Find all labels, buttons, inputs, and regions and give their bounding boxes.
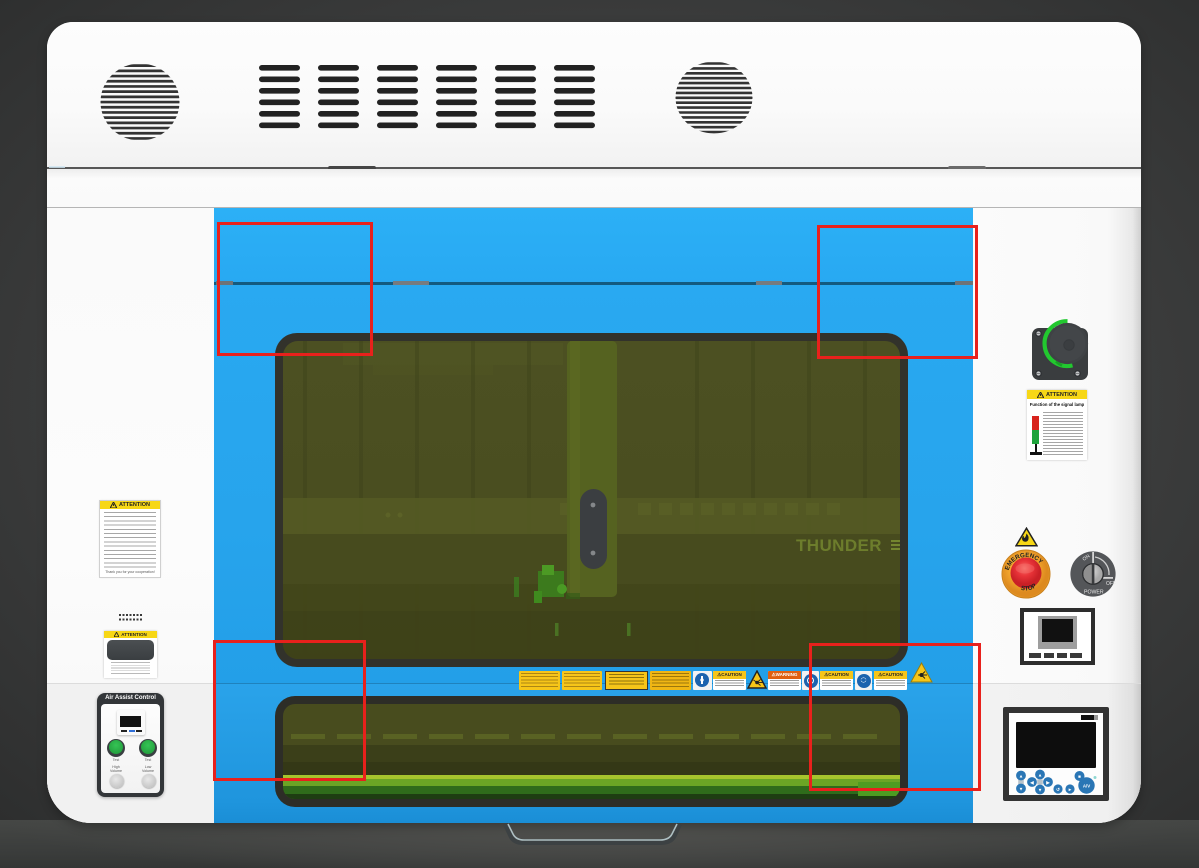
svg-text:▲: ▲ <box>1038 772 1043 777</box>
svg-text:■: ■ <box>1078 774 1081 779</box>
svg-text:▲: ▲ <box>1019 773 1024 778</box>
svg-text:►: ► <box>1068 787 1073 792</box>
svg-text:POWER: POWER <box>1084 590 1104 596</box>
svg-text:THUNDER: THUNDER <box>796 536 882 555</box>
svg-text:↺: ↺ <box>1056 787 1060 792</box>
svg-text:▼: ▼ <box>1019 787 1024 792</box>
svg-text:OFF: OFF <box>1106 581 1116 587</box>
svg-text:A/V: A/V <box>1083 784 1090 789</box>
svg-text:◀: ◀ <box>1029 780 1034 785</box>
svg-text:▼: ▼ <box>1038 788 1043 793</box>
